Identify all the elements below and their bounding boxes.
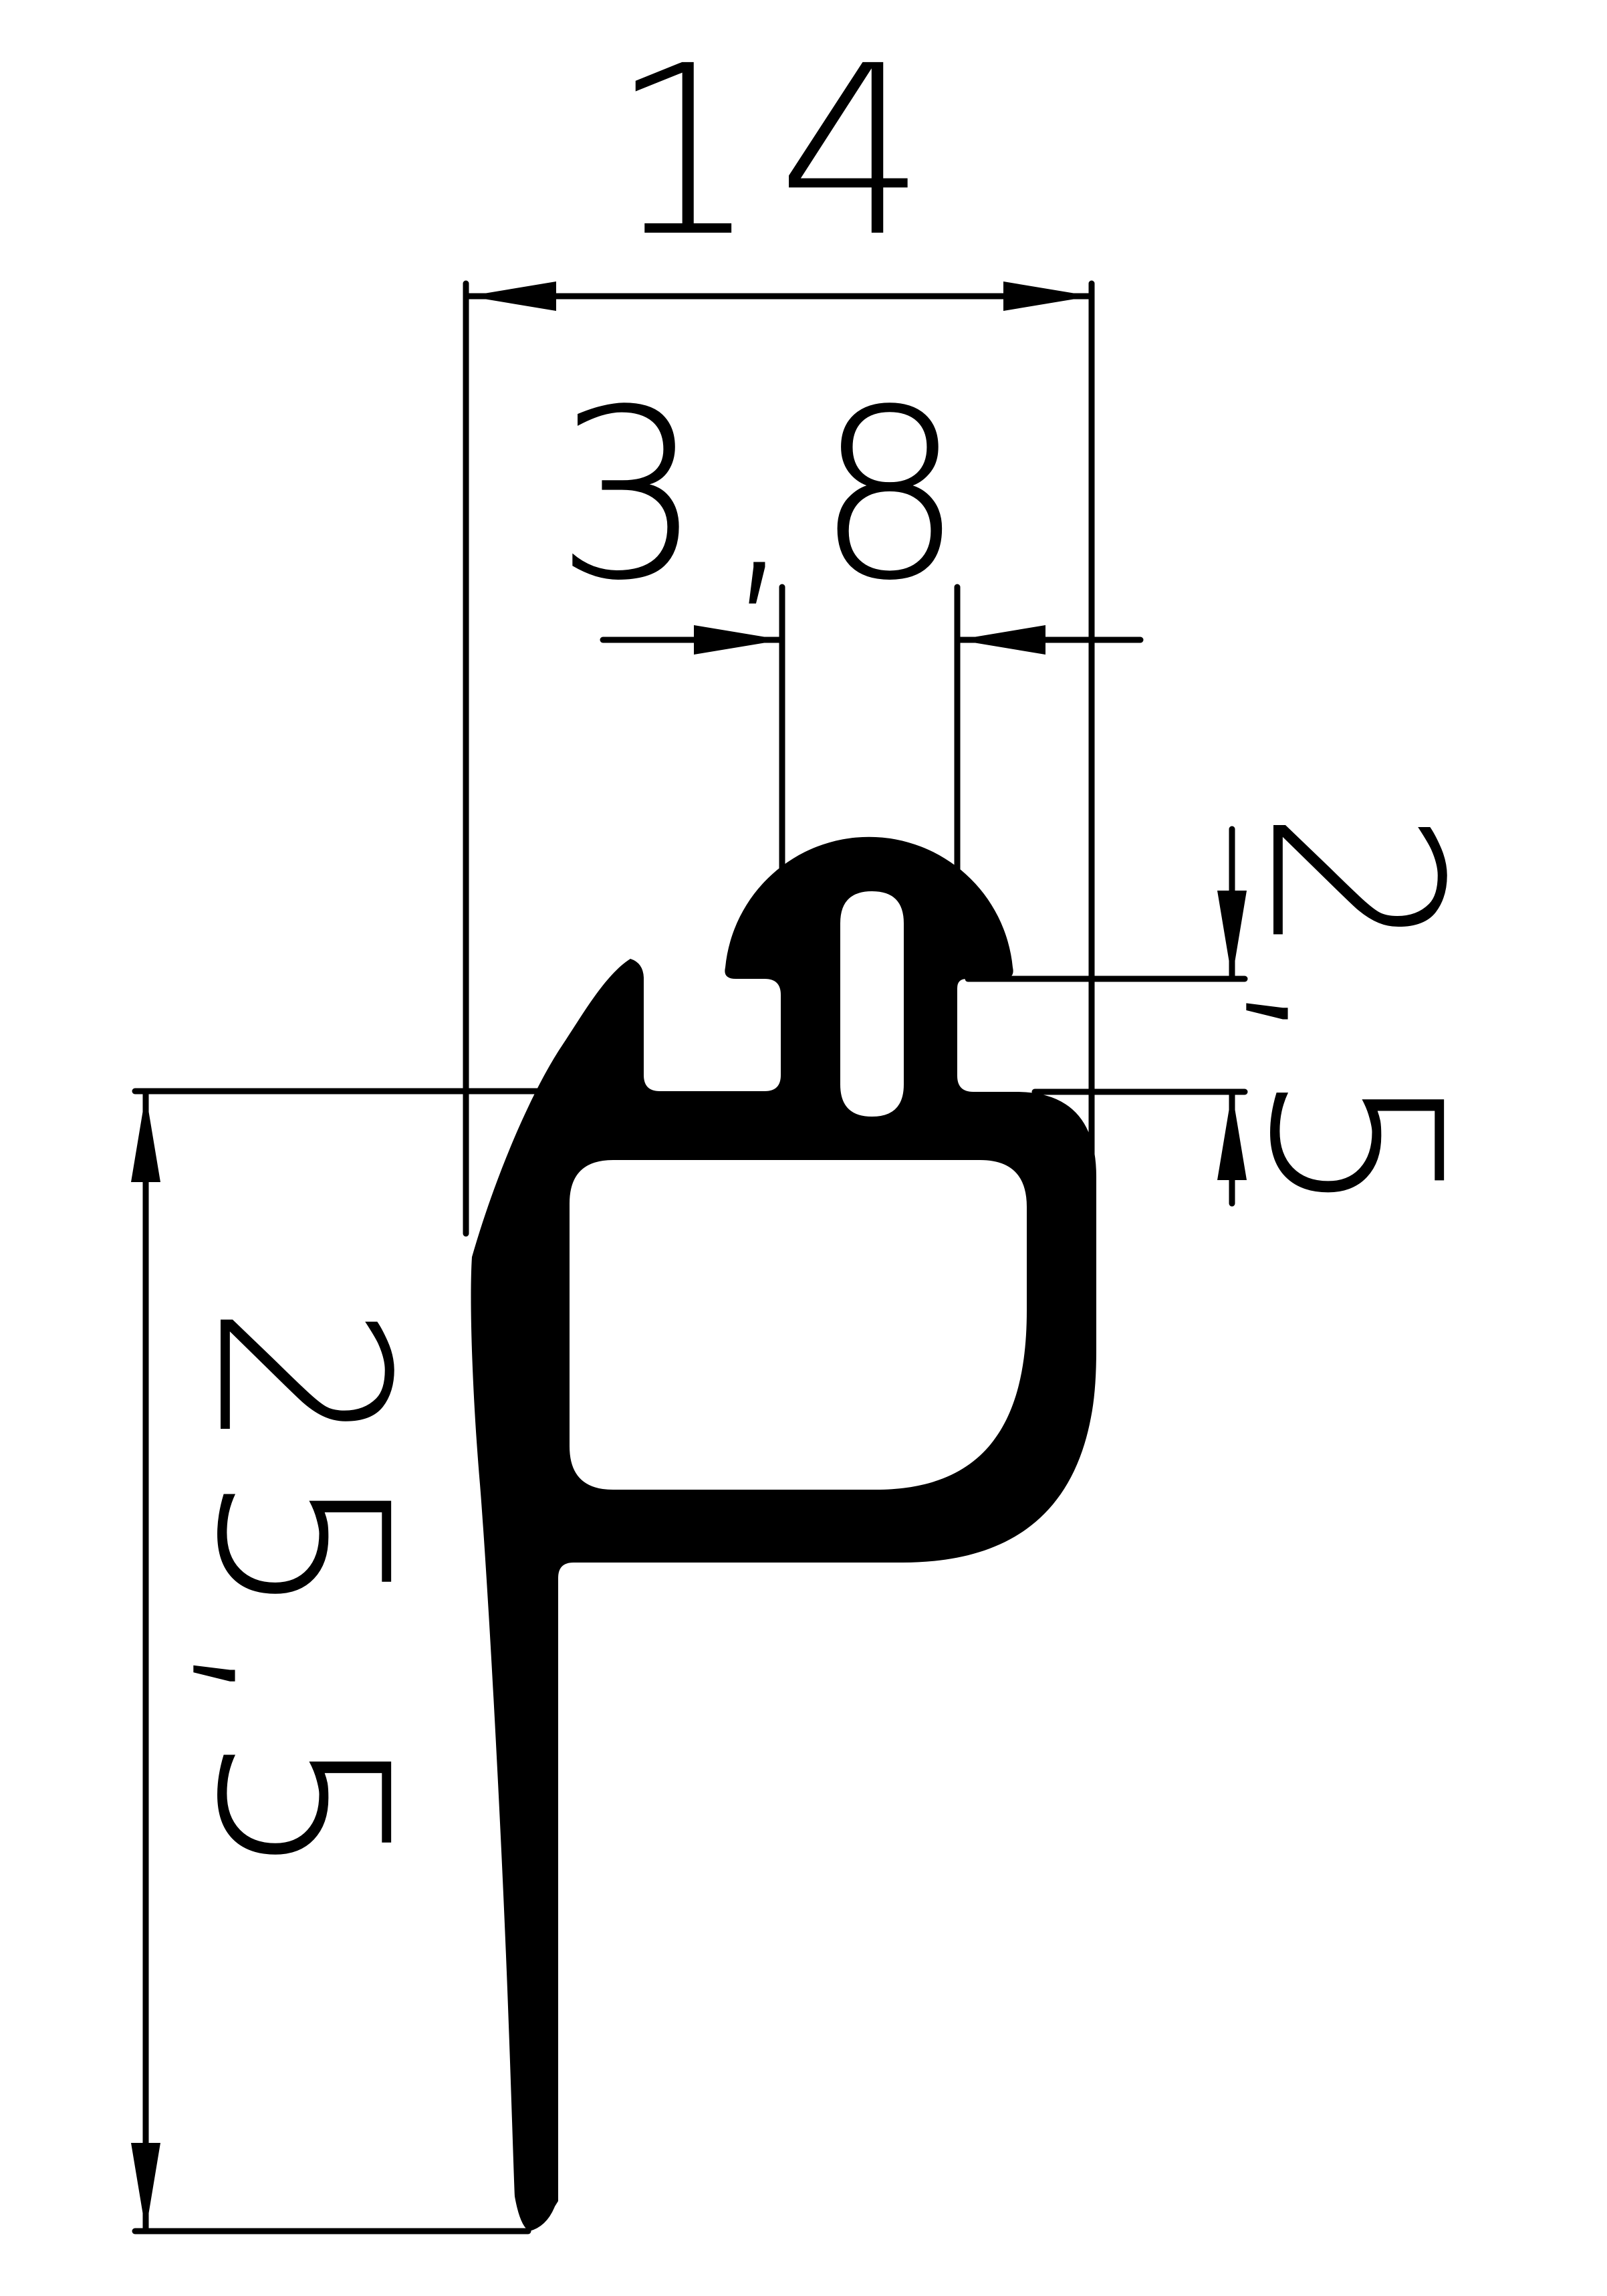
technical-drawing-canvas: 14 3,8 2,5 25,5	[0, 0, 1607, 2296]
dimension-value-overall-width: 14	[610, 15, 945, 288]
technical-drawing-page: 14 3,8 2,5 25,5	[0, 0, 1607, 2296]
arrowhead-left-icon	[468, 281, 556, 311]
arrowhead-top-icon	[131, 1094, 160, 1182]
arrowhead-right-icon	[1003, 281, 1092, 311]
dimension-value-stem-width: 3,8	[555, 359, 983, 632]
dimension-value-gap-height: 2,5	[1218, 809, 1491, 1238]
arrowhead-bottom-icon	[131, 2143, 160, 2231]
seal-profile	[471, 837, 1097, 2231]
dimension-value-overall-height: 25,5	[165, 1303, 438, 1899]
seal-profile-shape	[471, 837, 1097, 2231]
